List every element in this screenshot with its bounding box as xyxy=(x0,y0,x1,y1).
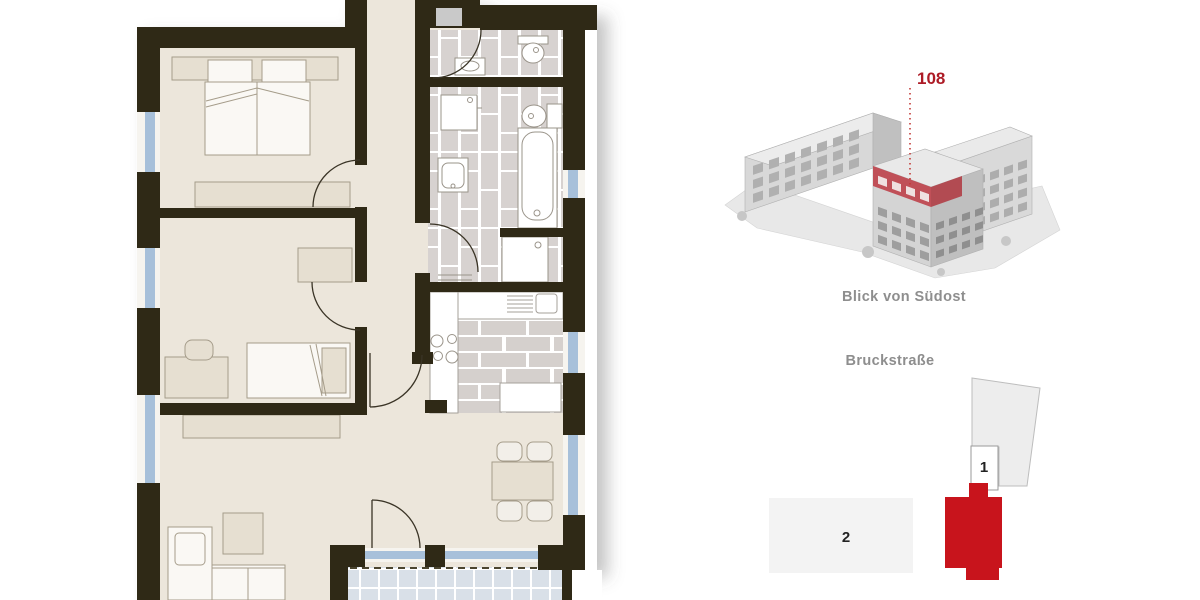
page-canvas: 108 Blick von Südost Bruckstraße 1 2 xyxy=(0,0,1200,600)
window-kitchen xyxy=(563,332,585,373)
street-label: Bruckstraße xyxy=(845,353,934,369)
desk xyxy=(165,357,228,398)
window-dining xyxy=(563,435,585,515)
pillow-left xyxy=(208,60,252,82)
balcony-glazing xyxy=(365,548,538,562)
single-bed-pillow xyxy=(322,348,346,393)
sideboard-living xyxy=(183,415,340,438)
desk-chair xyxy=(185,340,213,360)
site-building-2-label: 2 xyxy=(842,529,850,546)
window-bedroom1 xyxy=(137,112,160,172)
unit-number-label: 108 xyxy=(917,69,945,88)
headboard xyxy=(172,57,338,80)
entrance-threshold xyxy=(436,8,462,26)
floorplan-page: 108 Blick von Südost Bruckstraße 1 2 xyxy=(0,0,1200,600)
cabinet xyxy=(298,248,352,282)
pillow-right xyxy=(262,60,306,82)
site-building-1-label: 1 xyxy=(980,459,988,476)
dining-chair xyxy=(527,442,552,461)
isometric-building-view: 108 Blick von Südost xyxy=(725,69,1060,305)
coffee-table xyxy=(223,513,263,554)
window-living xyxy=(137,395,160,483)
dining-chair xyxy=(497,501,522,521)
balcony-floor xyxy=(348,567,562,600)
sideboard-bedroom1 xyxy=(195,182,350,207)
floor-plan xyxy=(137,0,602,600)
window-bedroom2 xyxy=(137,248,160,308)
toilet-cistern xyxy=(547,104,562,128)
balcony-outside-mask xyxy=(572,570,602,600)
window-bathroom xyxy=(563,170,585,198)
kitchen-island xyxy=(500,383,561,412)
kitchen-counter-left xyxy=(430,292,458,413)
building-middle xyxy=(873,149,983,267)
dining-chair xyxy=(527,501,552,521)
site-plan: Bruckstraße 1 2 xyxy=(769,353,1040,580)
toilet xyxy=(522,43,544,63)
dining-table xyxy=(492,462,553,500)
view-caption: Blick von Südost xyxy=(842,289,966,305)
dining-chair xyxy=(497,442,522,461)
site-building-highlighted[interactable] xyxy=(945,483,1002,580)
